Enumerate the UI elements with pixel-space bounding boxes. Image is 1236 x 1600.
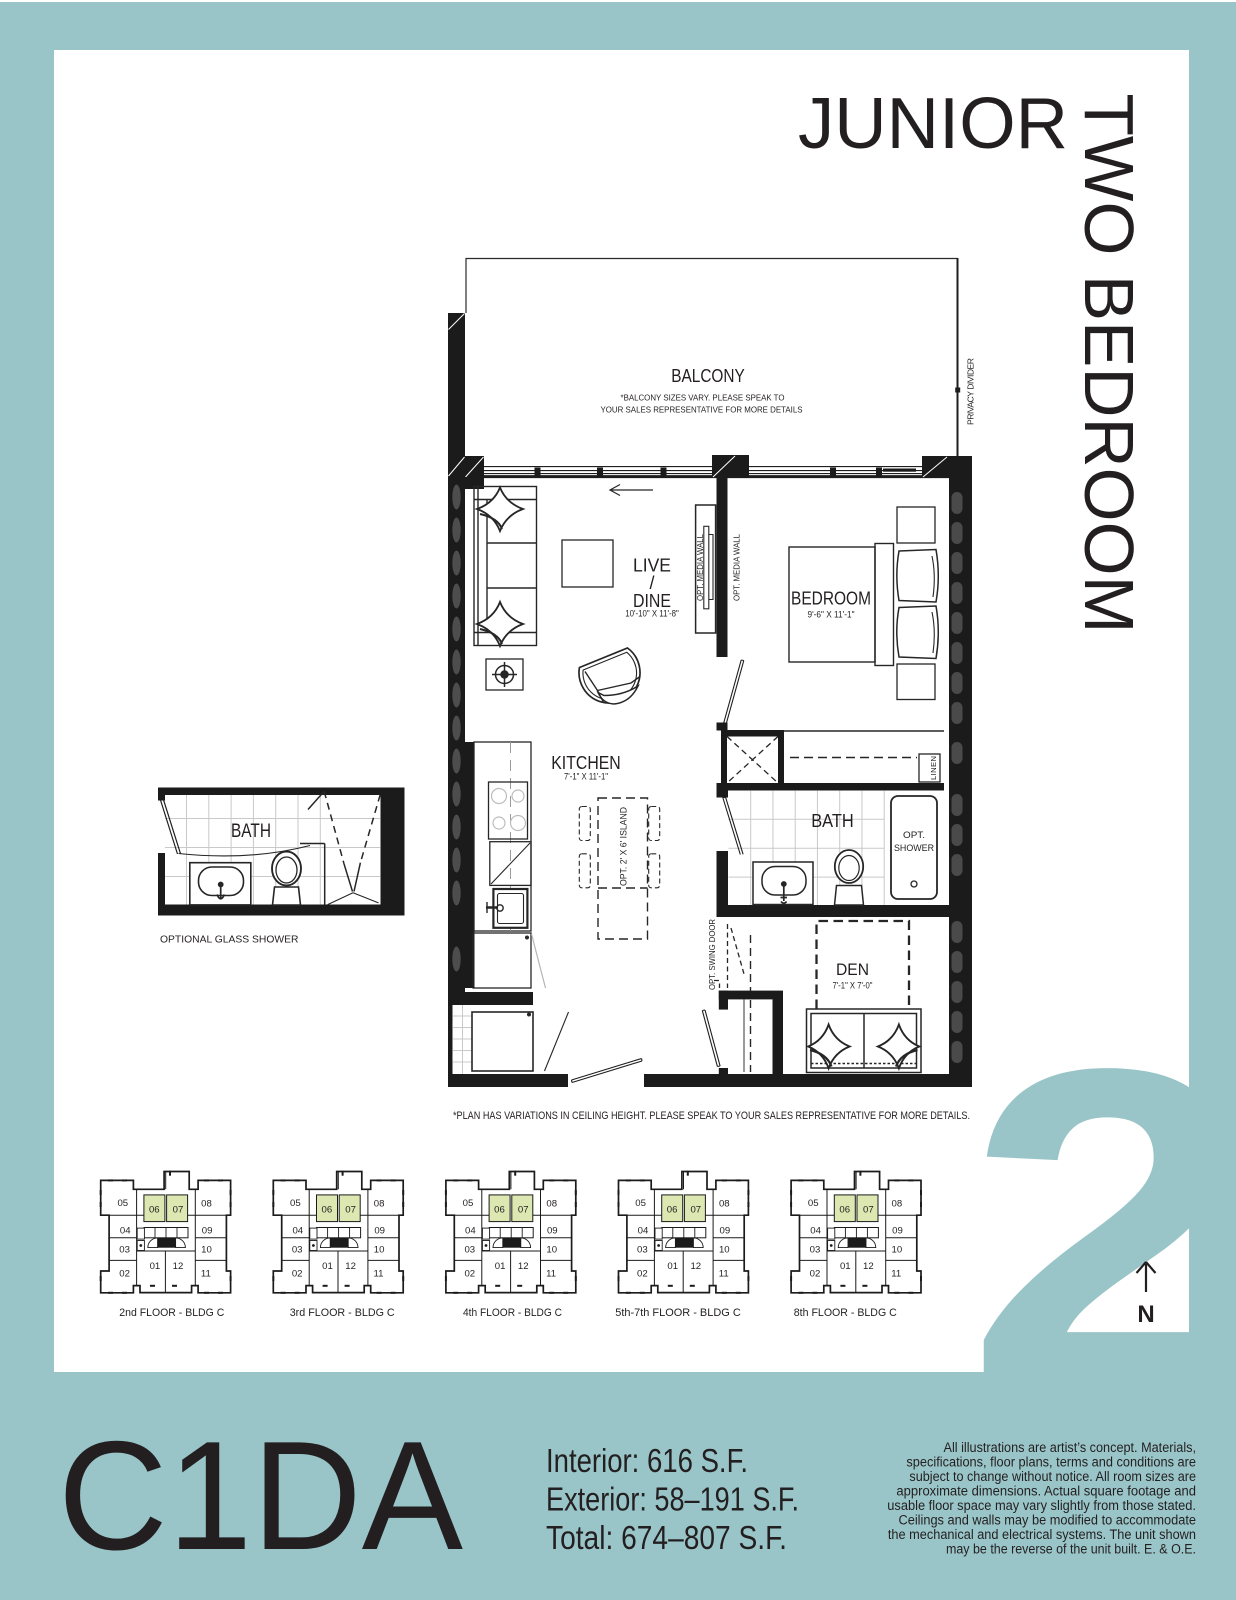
- svg-text:8th FLOOR - BLDG C: 8th FLOOR - BLDG C: [794, 1307, 897, 1319]
- svg-text:10'-10" X 11'-8": 10'-10" X 11'-8": [625, 609, 679, 619]
- svg-text:/: /: [649, 573, 654, 593]
- svg-text:2: 2: [966, 975, 1236, 1479]
- svg-text:OPT.: OPT.: [903, 830, 925, 840]
- svg-text:subject to change without noti: subject to change without notice. All ro…: [909, 1469, 1196, 1484]
- svg-text:7'-1" X 11'-1": 7'-1" X 11'-1": [564, 772, 608, 782]
- svg-text:SHOWER: SHOWER: [894, 843, 934, 853]
- svg-text:BALCONY: BALCONY: [671, 366, 745, 386]
- svg-text:N: N: [1137, 1301, 1154, 1328]
- svg-text:4th FLOOR - BLDG C: 4th FLOOR - BLDG C: [463, 1307, 562, 1319]
- svg-text:Exterior: 58–191 S.F.: Exterior: 58–191 S.F.: [546, 1481, 799, 1518]
- svg-text:may be the reverse of the unit: may be the reverse of the unit built. E.…: [946, 1542, 1196, 1557]
- svg-text:Ceilings and walls may be modi: Ceilings and walls may be modified to ac…: [899, 1513, 1197, 1528]
- svg-text:*BALCONY SIZES VARY. PLEASE SP: *BALCONY SIZES VARY. PLEASE SPEAK TO: [621, 393, 786, 403]
- svg-text:BATH: BATH: [811, 811, 854, 831]
- svg-text:3rd FLOOR - BLDG C: 3rd FLOOR - BLDG C: [290, 1307, 395, 1319]
- svg-text:7'-1" X 7'-0": 7'-1" X 7'-0": [833, 981, 873, 991]
- svg-text:YOUR SALES REPRESENTATIVE FOR: YOUR SALES REPRESENTATIVE FOR MORE DETAI…: [601, 405, 803, 415]
- svg-text:OPT. 2' X 6' ISLAND: OPT. 2' X 6' ISLAND: [619, 807, 629, 886]
- svg-text:9'-6" X 11'-1": 9'-6" X 11'-1": [808, 610, 855, 620]
- svg-text:*PLAN HAS VARIATIONS IN CEILIN: *PLAN HAS VARIATIONS IN CEILING HEIGHT. …: [453, 1110, 970, 1122]
- svg-text:Total: 674–807 S.F.: Total: 674–807 S.F.: [546, 1519, 787, 1556]
- svg-text:specifications, floor plans, t: specifications, floor plans, terms and c…: [906, 1455, 1196, 1470]
- svg-text:5th-7th FLOOR - BLDG C: 5th-7th FLOOR - BLDG C: [615, 1307, 741, 1319]
- svg-text:the mechanical and electrical: the mechanical and electrical systems. T…: [888, 1527, 1196, 1542]
- svg-text:All illustrations are artist’s: All illustrations are artist’s concept. …: [944, 1440, 1197, 1455]
- svg-text:JUNIOR: JUNIOR: [798, 84, 1068, 164]
- svg-text:OPT. SWING DOOR: OPT. SWING DOOR: [707, 919, 717, 990]
- svg-text:OPTIONAL GLASS SHOWER: OPTIONAL GLASS SHOWER: [160, 935, 299, 946]
- svg-text:C1DA: C1DA: [58, 1409, 464, 1582]
- svg-text:Interior: 616 S.F.: Interior: 616 S.F.: [546, 1442, 748, 1479]
- svg-text:DEN: DEN: [836, 960, 869, 979]
- svg-text:2nd FLOOR - BLDG C: 2nd FLOOR - BLDG C: [119, 1307, 224, 1319]
- svg-text:LINEN: LINEN: [929, 756, 938, 780]
- svg-text:PRIVACY DIVIDER: PRIVACY DIVIDER: [966, 358, 976, 425]
- svg-text:OPT. MEDIA WALL: OPT. MEDIA WALL: [732, 534, 742, 601]
- svg-text:OPT. MEDIA WALL: OPT. MEDIA WALL: [695, 534, 705, 601]
- svg-text:TWO BEDROOM: TWO BEDROOM: [1070, 94, 1148, 634]
- svg-text:approximate dimensions. Actua: approximate dimensions. Actual square fo…: [896, 1484, 1196, 1499]
- svg-text:BATH: BATH: [231, 821, 271, 842]
- svg-text:BEDROOM: BEDROOM: [791, 589, 871, 609]
- svg-text:usable floor space may vary sl: usable floor space may vary slightly fro…: [887, 1498, 1196, 1513]
- svg-text:KITCHEN: KITCHEN: [551, 753, 621, 773]
